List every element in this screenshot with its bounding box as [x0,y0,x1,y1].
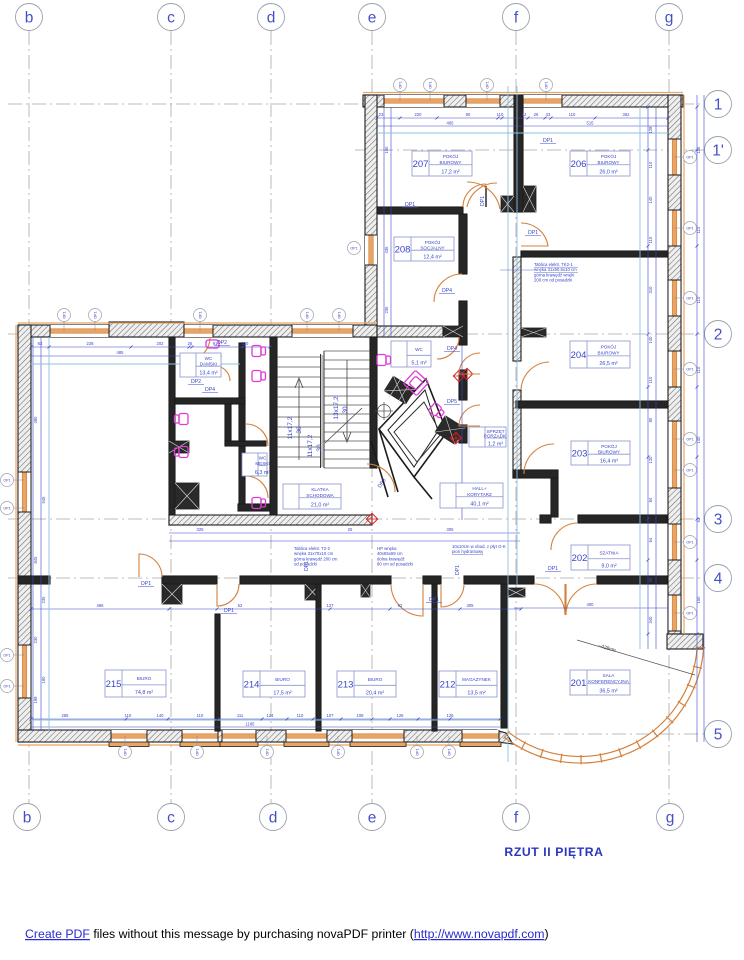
svg-text:545: 545 [41,496,46,504]
svg-text:36,5 m²: 36,5 m² [599,689,617,695]
svg-text:515: 515 [587,121,595,126]
svg-text:128: 128 [648,126,653,134]
svg-text:Create PDF files without this: Create PDF files without this message by… [25,927,549,941]
svg-text:30: 30 [296,426,303,434]
svg-text:OP1: OP1 [3,684,10,688]
svg-text:RZUT II PIĘTRA: RZUT II PIĘTRA [504,845,603,859]
svg-text:OP1: OP1 [447,748,451,755]
svg-text:26: 26 [534,112,539,117]
svg-text:64: 64 [648,537,653,542]
svg-text:HALL+: HALL+ [472,486,486,491]
svg-text:MĘSKI: MĘSKI [255,461,269,466]
svg-text:150: 150 [696,596,701,604]
svg-text:KLATKA: KLATKA [311,487,329,492]
svg-text:30: 30 [342,406,349,414]
svg-text:127: 127 [327,603,335,608]
svg-text:198: 198 [33,696,38,704]
svg-text:236: 236 [384,306,389,314]
svg-text:9,0 m²: 9,0 m² [601,564,616,570]
svg-text:110: 110 [648,236,653,243]
svg-text:5: 5 [714,727,723,744]
svg-text:80 cm od posadzki: 80 cm od posadzki [377,562,413,567]
svg-text:486: 486 [97,603,105,608]
svg-text:17,5 m²: 17,5 m² [273,690,291,696]
svg-text:b: b [25,10,34,27]
svg-text:1': 1' [712,143,724,160]
svg-text:g: g [666,810,675,827]
svg-text:310: 310 [648,286,653,294]
svg-text:5,1 m²: 5,1 m² [411,360,426,366]
svg-text:21,0 m²: 21,0 m² [311,503,329,509]
svg-text:OP1: OP1 [350,246,357,250]
svg-text:16,4 m²: 16,4 m² [600,459,618,465]
svg-text:208: 208 [395,245,411,256]
svg-text:OP1: OP1 [3,478,10,482]
svg-text:180: 180 [41,676,46,684]
svg-text:212: 212 [440,680,456,691]
svg-text:POKÓJ: POKÓJ [601,443,617,449]
svg-text:OP1: OP1 [686,437,693,441]
svg-text:13x17,2: 13x17,2 [333,396,340,420]
svg-text:PORZĄDK.: PORZĄDK. [484,434,507,439]
svg-text:110: 110 [569,112,576,117]
svg-text:d: d [269,810,278,827]
svg-text:2: 2 [714,327,723,344]
svg-text:OP1: OP1 [265,748,269,755]
svg-text:KONFERENCYJNA: KONFERENCYJNA [588,679,630,684]
svg-text:OP1: OP1 [544,81,548,88]
svg-text:OP1: OP1 [686,367,693,371]
svg-text:25: 25 [348,527,353,532]
svg-text:110: 110 [197,713,204,718]
svg-text:OP1: OP1 [686,611,693,615]
svg-text:110: 110 [497,112,504,117]
svg-text:OP1: OP1 [337,311,341,318]
svg-text:110: 110 [125,713,132,718]
svg-text:480: 480 [33,416,38,424]
svg-text:40,1 m²: 40,1 m² [470,502,488,508]
svg-text:230: 230 [33,636,38,644]
svg-text:305: 305 [467,603,475,608]
svg-text:1185: 1185 [245,722,255,727]
svg-text:215: 215 [106,679,122,690]
svg-text:BIUROWY: BIUROWY [440,160,462,165]
svg-text:OP1: OP1 [3,506,10,510]
svg-text:POKÓJ: POKÓJ [601,343,617,349]
svg-text:1,2 m²: 1,2 m² [488,441,503,447]
svg-text:150: 150 [384,146,389,154]
svg-text:74,8 m²: 74,8 m² [135,690,153,696]
svg-text:BIURO: BIURO [137,676,152,681]
svg-text:63: 63 [38,341,43,346]
svg-text:DP1: DP1 [224,608,234,614]
svg-text:4: 4 [714,571,723,588]
svg-text:OP1: OP1 [398,81,402,88]
svg-text:pion hydrantowy: pion hydrantowy [452,549,484,554]
svg-text:e: e [368,810,377,827]
svg-text:OP1: OP1 [686,468,693,472]
svg-text:BIURO: BIURO [368,677,383,682]
svg-text:DP1: DP1 [543,138,553,144]
svg-text:204: 204 [571,350,587,361]
svg-text:6,3 m²: 6,3 m² [255,470,270,476]
svg-text:DP1: DP1 [480,196,486,206]
svg-text:207: 207 [413,159,429,170]
svg-text:DP1: DP1 [455,565,461,575]
svg-text:3: 3 [714,512,723,529]
svg-text:OP1: OP1 [686,296,693,300]
svg-text:OP1: OP1 [686,540,693,544]
svg-text:DP1: DP1 [405,202,415,208]
svg-text:140: 140 [157,713,165,718]
svg-text:DP1: DP1 [528,230,538,236]
svg-text:285: 285 [62,713,70,718]
svg-text:107: 107 [327,713,335,718]
svg-text:OP1: OP1 [428,81,432,88]
svg-text:DP5: DP5 [447,399,457,405]
svg-text:305: 305 [447,527,455,532]
svg-text:213: 213 [338,680,354,691]
svg-text:110: 110 [696,146,701,153]
svg-text:11x17,2: 11x17,2 [307,434,314,457]
svg-text:88: 88 [648,577,653,582]
svg-text:206: 206 [571,159,587,170]
svg-text:124: 124 [267,713,275,718]
svg-text:g: g [665,10,674,27]
svg-text:OP1: OP1 [198,311,202,318]
svg-text:OP1: OP1 [3,653,10,657]
svg-text:SCHODOWA: SCHODOWA [306,493,334,498]
svg-text:WC: WC [259,456,267,461]
svg-text:214: 214 [244,680,260,691]
svg-text:84: 84 [648,497,653,502]
svg-text:d: d [267,10,276,27]
svg-text:c: c [167,810,175,827]
svg-text:OP1: OP1 [686,155,693,159]
svg-text:126: 126 [397,713,405,718]
svg-text:20,4 m²: 20,4 m² [366,690,384,696]
svg-text:203: 203 [572,449,588,460]
svg-text:BIURO: BIURO [275,677,290,682]
svg-text:108: 108 [357,713,365,718]
svg-text:235: 235 [41,596,46,604]
svg-text:26,5 m²: 26,5 m² [599,361,617,367]
svg-text:POKÓJ: POKÓJ [425,239,441,245]
svg-text:od posadzki: od posadzki [294,562,317,567]
svg-text:436: 436 [384,246,389,254]
svg-text:465: 465 [447,121,455,126]
svg-text:126: 126 [447,713,455,718]
svg-text:POKÓJ: POKÓJ [601,153,617,159]
svg-text:KORYTARZ: KORYTARZ [467,492,492,497]
svg-text:DP1: DP1 [429,597,439,603]
svg-text:26: 26 [188,341,193,346]
svg-text:BIUROWY: BIUROWY [598,351,620,356]
svg-text:120: 120 [648,456,653,464]
svg-text:17,2 m²: 17,2 m² [441,170,459,176]
svg-text:110: 110 [648,161,653,168]
svg-text:202: 202 [572,553,588,564]
svg-text:1: 1 [714,97,723,114]
svg-text:202: 202 [157,341,165,346]
svg-text:26,0 m²: 26,0 m² [599,170,617,176]
svg-text:POKÓJ: POKÓJ [443,153,459,159]
svg-text:200 cm od posadzki: 200 cm od posadzki [534,278,572,283]
svg-text:201: 201 [571,678,587,689]
svg-text:400: 400 [587,602,595,607]
svg-text:92: 92 [398,603,403,608]
svg-text:DP4: DP4 [205,387,215,393]
svg-text:90: 90 [466,112,471,117]
svg-text:43: 43 [546,112,551,117]
svg-text:WC: WC [205,356,213,361]
svg-text:DP1: DP1 [548,566,558,572]
svg-text:23: 23 [379,112,384,117]
svg-text:f: f [514,10,519,27]
svg-text:OP1: OP1 [93,311,97,318]
svg-text:e: e [368,10,377,27]
svg-text:52: 52 [238,603,243,608]
svg-text:13,5 m²: 13,5 m² [467,690,485,696]
svg-text:SZATNIA: SZATNIA [599,551,619,556]
svg-text:325: 325 [197,527,205,532]
svg-text:111: 111 [237,713,244,718]
svg-text:340: 340 [648,616,653,624]
svg-text:DAMSKI: DAMSKI [200,361,218,366]
svg-text:WC: WC [415,347,423,352]
svg-text:OP1: OP1 [305,311,309,318]
svg-text:110: 110 [297,713,304,718]
svg-text:OP1: OP1 [123,748,127,755]
svg-text:OP1: OP1 [686,226,693,230]
svg-text:BIUROWY: BIUROWY [598,160,620,165]
svg-text:12,4 m²: 12,4 m² [423,255,441,261]
svg-text:DP2: DP2 [191,379,201,385]
svg-text:OP1: OP1 [415,748,419,755]
svg-text:220: 220 [415,112,423,117]
svg-text:OP1: OP1 [485,81,489,88]
svg-text:DP2: DP2 [217,340,227,346]
svg-text:BIUROWY: BIUROWY [598,449,620,454]
svg-text:42: 42 [522,112,527,117]
svg-text:DP4: DP4 [447,346,457,352]
svg-text:30: 30 [316,444,323,452]
svg-text:362: 362 [623,112,631,117]
svg-text:OP1: OP1 [195,748,199,755]
svg-text:110: 110 [648,376,653,383]
svg-text:OP1: OP1 [336,748,340,755]
svg-text:f: f [514,810,519,827]
svg-text:MAGAZYNEK: MAGAZYNEK [462,677,492,682]
svg-text:140: 140 [648,196,653,204]
svg-text:OP1: OP1 [62,311,66,318]
svg-text:845: 845 [33,556,38,564]
svg-text:SOCJALNY: SOCJALNY [420,245,444,250]
svg-text:c: c [167,10,175,27]
svg-text:b: b [23,810,32,827]
svg-text:110: 110 [242,341,249,346]
svg-text:13,4 m²: 13,4 m² [199,371,217,377]
svg-text:80: 80 [648,417,653,422]
svg-text:SALA: SALA [603,673,616,678]
svg-text:11x17,2: 11x17,2 [287,416,294,439]
svg-text:140: 140 [648,336,653,344]
svg-text:DP4: DP4 [442,288,452,294]
svg-text:228: 228 [87,341,95,346]
svg-text:DP1: DP1 [141,581,151,587]
svg-text:485: 485 [117,350,125,355]
